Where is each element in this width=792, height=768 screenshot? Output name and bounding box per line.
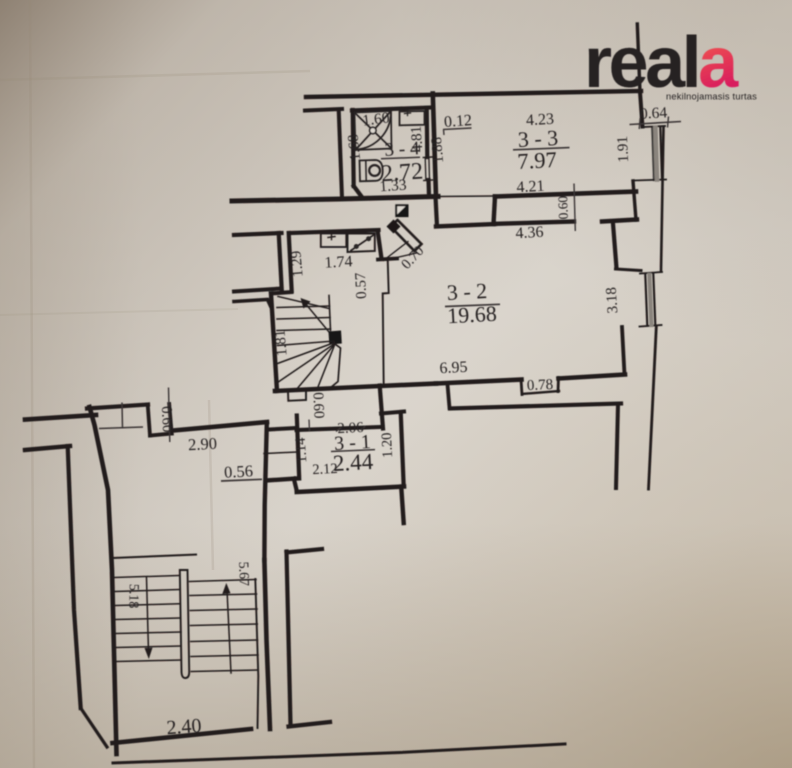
svg-text:1.91: 1.91 — [615, 136, 632, 163]
svg-text:5.18: 5.18 — [125, 584, 140, 609]
svg-text:4.23: 4.23 — [526, 111, 555, 129]
svg-text:0.78: 0.78 — [527, 377, 554, 394]
svg-text:0.60: 0.60 — [310, 392, 327, 419]
svg-text:0.64: 0.64 — [640, 104, 668, 122]
svg-text:3.18: 3.18 — [604, 287, 622, 314]
svg-text:0.56: 0.56 — [224, 461, 254, 481]
svg-text:1.29: 1.29 — [288, 250, 306, 278]
svg-text:0.60: 0.60 — [555, 195, 571, 219]
svg-text:1.33: 1.33 — [379, 177, 407, 196]
svg-text:19.68: 19.68 — [447, 301, 498, 329]
svg-text:0.60: 0.60 — [158, 406, 175, 433]
svg-text:2.40: 2.40 — [166, 715, 202, 739]
svg-text:7.97: 7.97 — [517, 147, 558, 174]
svg-text:1.81: 1.81 — [272, 329, 290, 357]
svg-text:1.20: 1.20 — [379, 432, 396, 458]
svg-text:2.90: 2.90 — [188, 434, 218, 454]
svg-text:4.21: 4.21 — [516, 178, 545, 196]
svg-text:1.60: 1.60 — [362, 109, 391, 129]
svg-text:1.74: 1.74 — [324, 253, 353, 271]
svg-text:4.81: 4.81 — [409, 125, 427, 152]
svg-text:0.12: 0.12 — [443, 112, 472, 131]
svg-text:5.67: 5.67 — [235, 561, 251, 586]
svg-text:1.68: 1.68 — [345, 134, 364, 162]
svg-text:2.06: 2.06 — [337, 420, 365, 437]
svg-text:4.36: 4.36 — [515, 224, 544, 242]
svg-text:nekilnojamasis turtas: nekilnojamasis turtas — [666, 92, 757, 102]
svg-text:6.95: 6.95 — [439, 359, 468, 377]
svg-text:1.14: 1.14 — [293, 436, 311, 463]
svg-text:2.12: 2.12 — [312, 461, 338, 478]
svg-text:1.88: 1.88 — [429, 136, 447, 164]
svg-text:2.44: 2.44 — [332, 449, 374, 476]
svg-text:0.57: 0.57 — [353, 272, 370, 300]
